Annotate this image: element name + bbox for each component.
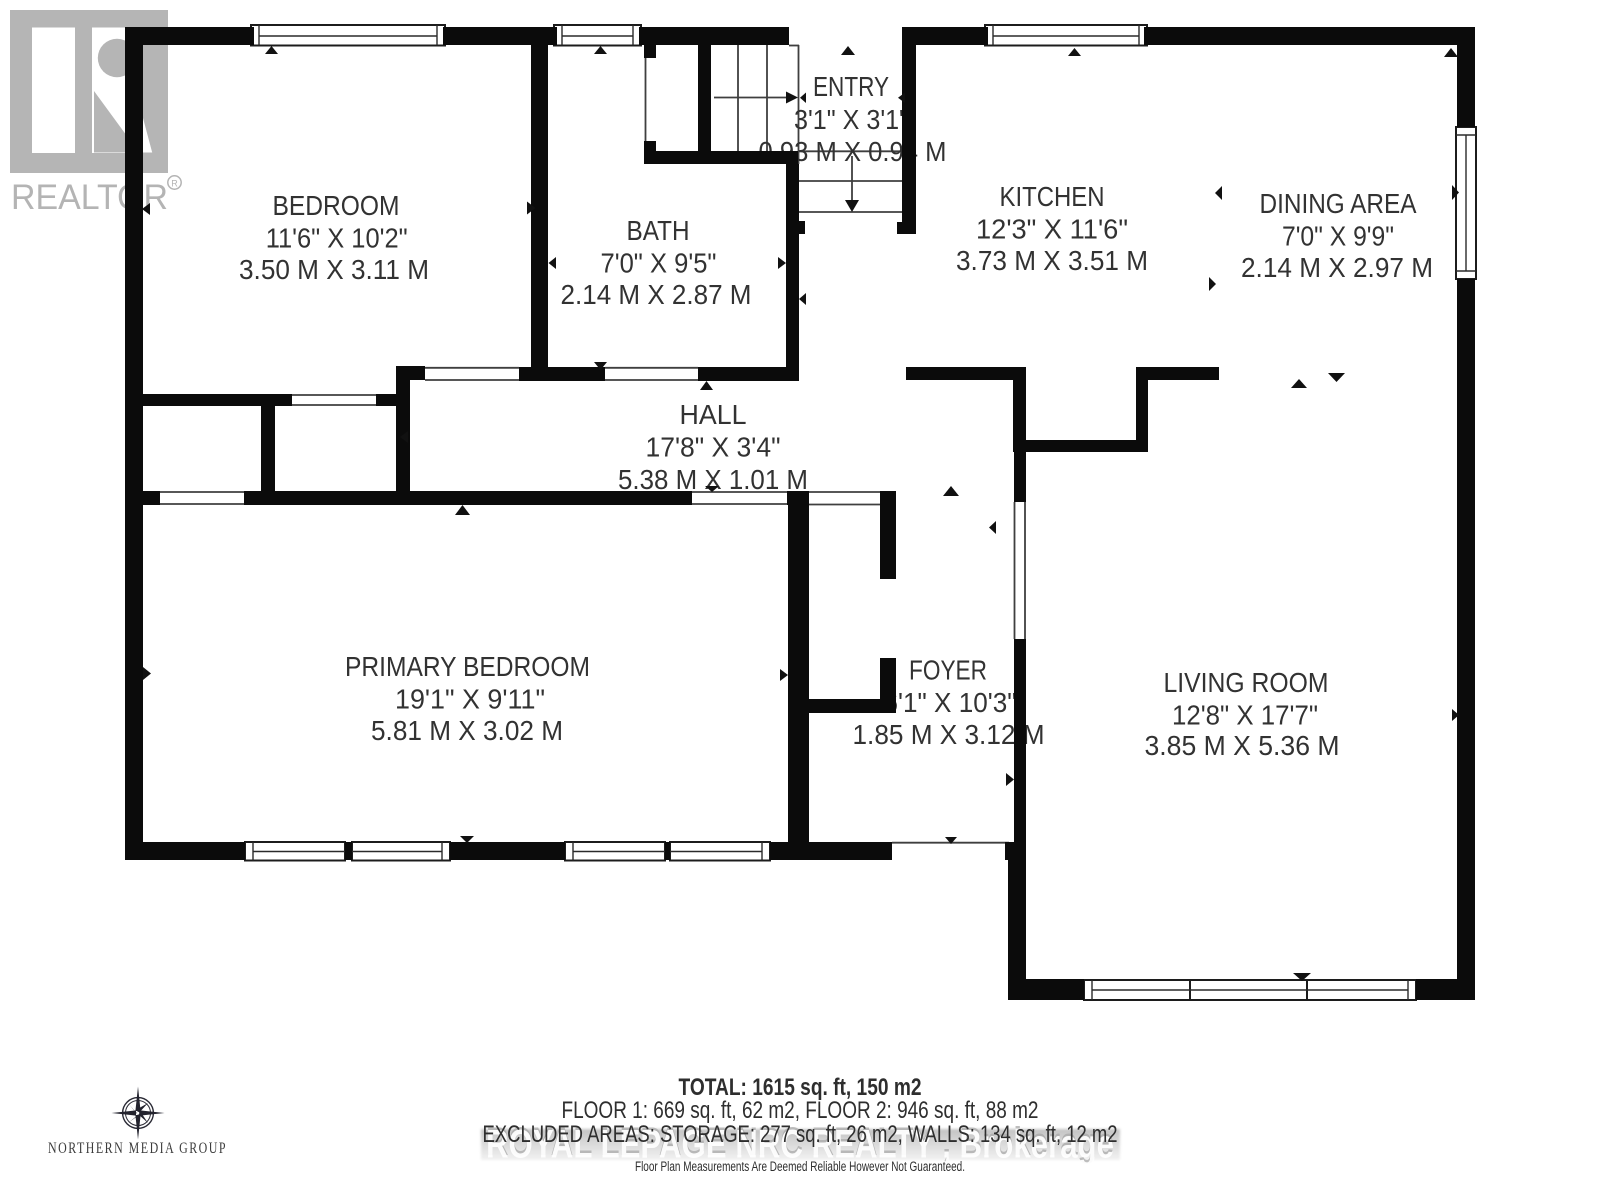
- svg-text:11'6" X 10'2": 11'6" X 10'2": [266, 223, 408, 254]
- svg-text:7'0" X 9'9": 7'0" X 9'9": [1282, 221, 1394, 252]
- svg-text:BEDROOM: BEDROOM: [273, 190, 400, 221]
- svg-text:19'1" X 9'11": 19'1" X 9'11": [395, 684, 545, 715]
- svg-text:REALTOR: REALTOR: [11, 178, 168, 217]
- svg-text:NORTHERN MEDIA GROUP: NORTHERN MEDIA GROUP: [48, 1140, 227, 1157]
- svg-text:FOYER: FOYER: [909, 655, 987, 686]
- svg-text:3.50 M X 3.11 M: 3.50 M X 3.11 M: [239, 254, 429, 285]
- svg-text:LIVING ROOM: LIVING ROOM: [1164, 667, 1329, 698]
- svg-text:DINING AREA: DINING AREA: [1260, 188, 1417, 219]
- svg-text:3.73 M X 3.51 M: 3.73 M X 3.51 M: [956, 245, 1148, 276]
- svg-text:Floor Plan Measurements Are De: Floor Plan Measurements Are Deemed Relia…: [635, 1159, 965, 1174]
- svg-text:ENTRY: ENTRY: [813, 71, 889, 102]
- svg-text:2.14 M X 2.97 M: 2.14 M X 2.97 M: [1241, 252, 1433, 283]
- svg-text:7'0" X 9'5": 7'0" X 9'5": [601, 248, 717, 279]
- svg-text:2.14 M X 2.87 M: 2.14 M X 2.87 M: [561, 279, 752, 310]
- svg-text:EXCLUDED AREAS: STORAGE: 277 s: EXCLUDED AREAS: STORAGE: 277 sq. ft, 26 …: [483, 1121, 1118, 1148]
- svg-text:FLOOR 1: 669 sq. ft, 62 m2, FL: FLOOR 1: 669 sq. ft, 62 m2, FLOOR 2: 946…: [562, 1097, 1039, 1124]
- svg-text:PRIMARY BEDROOM: PRIMARY BEDROOM: [345, 651, 590, 682]
- svg-text:12'8" X 17'7": 12'8" X 17'7": [1172, 700, 1318, 731]
- svg-text:3.85 M X 5.36 M: 3.85 M X 5.36 M: [1145, 730, 1340, 761]
- svg-text:5.81 M X 3.02 M: 5.81 M X 3.02 M: [371, 715, 563, 746]
- svg-text:6'1" X 10'3": 6'1" X 10'3": [884, 687, 1017, 718]
- svg-text:R: R: [171, 179, 178, 189]
- svg-text:BATH: BATH: [627, 215, 690, 246]
- svg-text:KITCHEN: KITCHEN: [1000, 181, 1105, 212]
- svg-text:HALL: HALL: [680, 399, 747, 430]
- svg-text:3'1" X 3'1": 3'1" X 3'1": [794, 104, 908, 135]
- svg-text:17'8" X 3'4": 17'8" X 3'4": [646, 432, 781, 463]
- svg-text:12'3" X 11'6": 12'3" X 11'6": [976, 214, 1128, 245]
